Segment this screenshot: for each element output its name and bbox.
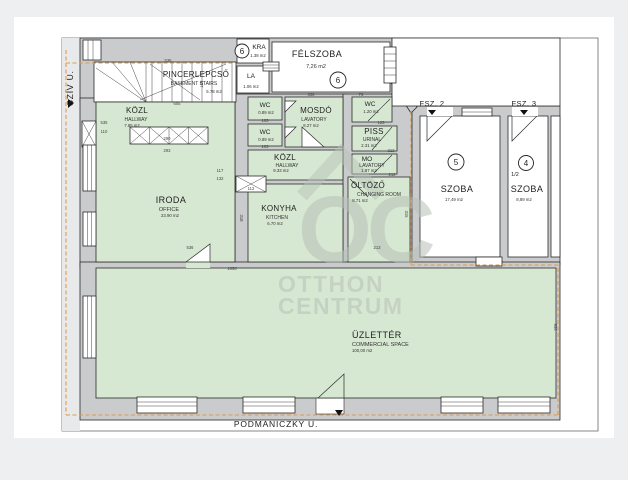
label-piss-name: PISS [364,127,383,136]
label-szoba4-area: 8,89 m2 [516,197,532,202]
label-unit6-number: 6 [240,47,245,56]
dimension-label: 290 [164,136,172,141]
label-felszoba-number: 6 [336,76,341,85]
watermark-centrum: CENTRUM [278,293,404,319]
dimension-label: 212 [389,172,397,177]
label-street-sziv: SZÍV U. [65,70,75,105]
label-mo-name: MO [362,156,372,163]
dimension-label: 112 [248,186,255,191]
label-pincerlepcso-name: PINCERLEPCSŐ [163,70,229,79]
dimension-label: 937 [199,81,204,89]
dimension-label: 318 [239,215,244,223]
dimension-label: 1858 [227,266,237,271]
floorplan-drawing: OC OTTHON CENTRUM [0,0,628,480]
label-wc1-name: WC [260,102,271,109]
label-la-area: 1.06 m2 [243,84,259,89]
label-wc3-name: WC [365,101,376,108]
floorplan-page: OC OTTHON CENTRUM [0,0,628,480]
dimension-label: 117 [217,168,224,173]
label-szoba5-number: 5 [454,158,459,167]
label-szoba5-area: 17,49 m2 [445,197,464,202]
room-corridor [551,116,560,257]
dimension-label: 315 [404,211,409,219]
label-szoba4-number: 4 [524,159,529,168]
label-felszoba-name: FÉLSZOBA [292,49,342,59]
room-kozl1-iroda [96,102,235,262]
label-wc2-name: WC [260,129,271,136]
label-iroda-area: 23.90 m2 [161,213,180,218]
label-szoba5-name: SZOBA [441,184,474,194]
label-szoba4-half: 1/2 [511,172,519,178]
label-oltozo-area: 8.71 m2 [352,198,368,203]
label-uzletter-area: 100,00 m2 [352,348,373,353]
label-pincerlepcso-area: 5.78 m2 [206,89,222,94]
label-kozl1-name: KÖZL [126,106,148,115]
dimension-label: 213 [374,245,382,250]
label-piss-area: 2.31 m2 [361,143,377,148]
label-mo-area: 1.97 m2 [361,168,377,173]
dimension-label: 536 [165,58,173,63]
label-kozl1-area: 7.85 m2 [124,123,140,128]
room-courtyard [392,38,560,106]
dimension-label: 110 [101,129,108,134]
dimension-label: 536 [187,245,195,250]
label-kra-area: 1.38 m2 [250,53,266,58]
dimension-label: 535 [101,120,109,125]
dimension-label: 936 [553,324,558,332]
dimension-label: 76 [359,92,364,97]
dimension-label: 103 [262,118,270,123]
label-wc3-area: 1.20 m2 [363,109,379,114]
label-fsz2: FSZ. 2 [420,99,445,108]
dimension-label: 293 [164,148,172,153]
label-wc2-area: 0.89 m2 [258,137,274,142]
dimension-label: 103 [262,144,270,149]
label-uzletter-name: ÜZLETTÉR [352,330,402,340]
label-mosdo-area: 8.27 m2 [303,123,319,128]
label-kozl2-name: KÖZL [274,153,296,162]
label-la-name: LA [247,73,256,80]
dimension-label: 123 [378,120,386,125]
dimension-label: 132 [217,176,225,181]
label-oltozo-name: ÖLTÖZŐ [351,181,385,190]
label-szoba4-name: SZOBA [511,184,544,194]
dimension-label: 212 [388,148,396,153]
label-konyha-name: KONYHA [261,204,297,213]
label-konyha-area: 6.70 m2 [267,221,283,226]
label-kozl2-area: 9.33 m2 [273,168,289,173]
label-iroda-name: IRODA [156,195,187,205]
label-felszoba-area: 7,26 m2 [306,64,326,70]
label-mosdo-name: MOSDÓ [300,106,332,115]
label-pincerlepcso-sub: BASEMENT STAIRS [171,81,218,87]
label-kra-name: KRA [252,44,266,51]
label-fsz3: FSZ. 3 [512,99,537,108]
dimension-label: 336 [308,92,316,97]
label-wc1-area: 0.89 m2 [258,110,274,115]
label-street-podmaniczky: PODMANICZKY U. [234,419,318,429]
dimension-label: 605 [174,101,182,106]
